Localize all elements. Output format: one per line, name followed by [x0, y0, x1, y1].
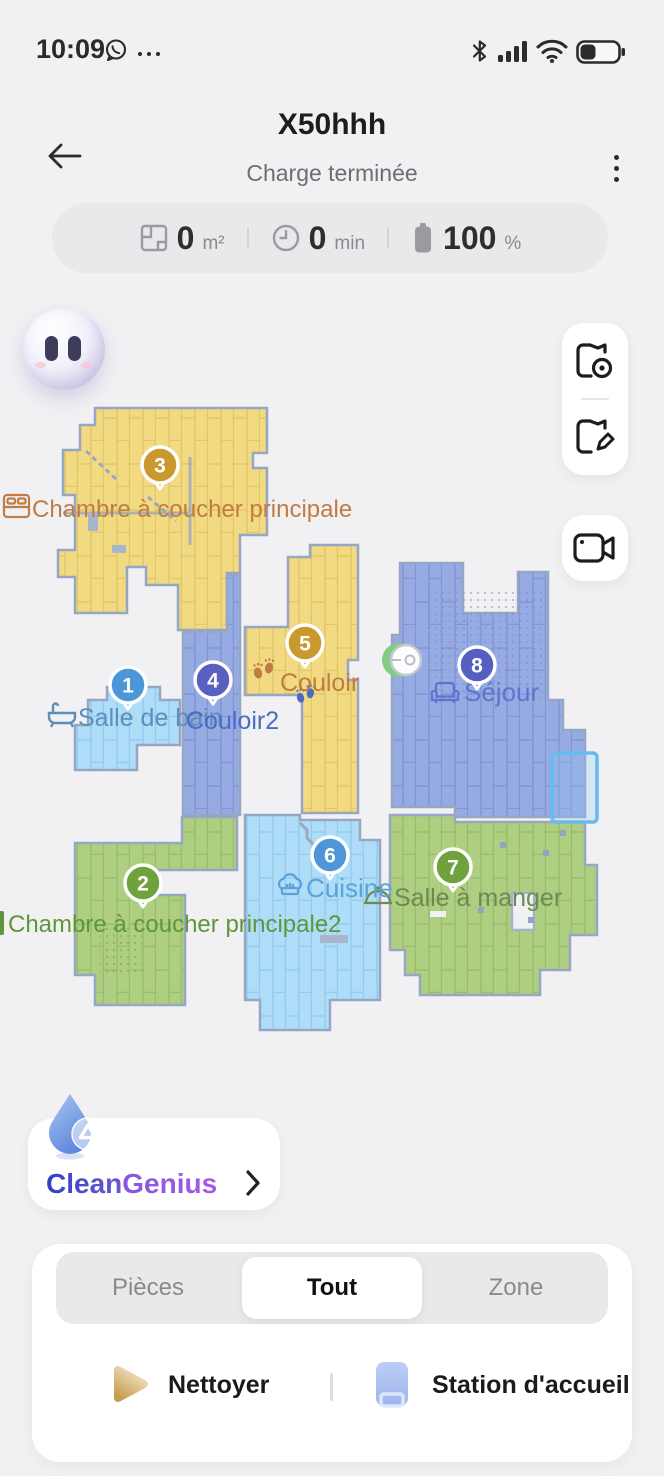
divider: [330, 1373, 333, 1401]
robot-eye: [45, 336, 58, 361]
room-label: Salle à manger: [394, 884, 562, 912]
play-icon[interactable]: [112, 1364, 150, 1404]
area-value: 0: [177, 220, 195, 257]
dock-station-icon[interactable]: [374, 1360, 410, 1408]
svg-text:6: 6: [324, 845, 336, 868]
robot-at-dock-icon[interactable]: [382, 643, 421, 677]
map-view-button[interactable]: [574, 342, 616, 380]
cellular-signal-icon: [498, 40, 530, 62]
robot-eye: [68, 336, 81, 361]
whatsapp-icon: [104, 38, 128, 62]
chevron-right-icon[interactable]: [244, 1170, 262, 1196]
dock-button[interactable]: Station d'accueil: [432, 1371, 630, 1400]
floor-map[interactable]: Chambre à coucher principale Salle de ba…: [0, 395, 664, 1045]
camera-button[interactable]: [562, 515, 628, 581]
battery-level-icon: [411, 222, 435, 254]
room-label: Couloir: [280, 669, 359, 697]
bathtub-icon: [49, 704, 75, 728]
mode-tabs: Pièces Tout Zone: [56, 1252, 608, 1324]
clock-icon: [271, 223, 301, 253]
svg-text:5: 5: [299, 633, 311, 656]
bluetooth-icon: [470, 39, 490, 63]
selected-zone-rect[interactable]: [552, 753, 597, 822]
room-label: Cuisine: [306, 873, 393, 903]
water-drop-icon: [44, 1092, 112, 1162]
battery-value: 100: [443, 220, 496, 257]
svg-text:4: 4: [207, 670, 219, 693]
cleangenius-title: CleanGenius: [46, 1168, 217, 1200]
map-edit-button[interactable]: [574, 418, 616, 456]
device-status: Charge terminée: [0, 160, 664, 187]
tab-tout[interactable]: Tout: [242, 1257, 422, 1319]
app-screen: 10:09 X50hhh Charge terminée: [0, 0, 664, 1476]
status-time: 10:09: [36, 34, 105, 65]
clean-controls-card: Pièces Tout Zone Nettoyer Station d'accu: [32, 1244, 632, 1462]
stat-battery: 100 %: [411, 220, 521, 257]
time-unit: min: [334, 233, 365, 255]
battery-unit: %: [504, 233, 521, 255]
svg-text:2: 2: [137, 873, 149, 896]
robot-blush: [35, 362, 46, 368]
area-icon: [139, 223, 169, 253]
svg-text:1: 1: [122, 675, 134, 698]
room-label: Chambre à coucher principale2: [8, 911, 342, 938]
status-more-icon: [138, 52, 160, 56]
robot-avatar[interactable]: [23, 308, 105, 390]
svg-text:8: 8: [471, 655, 483, 678]
divider: [581, 398, 609, 400]
divider: [247, 227, 249, 249]
video-camera-icon: [573, 532, 617, 564]
stat-time: 0 min: [271, 220, 365, 257]
stats-pill: 0 m² 0 min 100 %: [52, 203, 608, 273]
device-title: X50hhh: [0, 108, 664, 142]
stat-area: 0 m²: [139, 220, 225, 257]
svg-text:7: 7: [447, 857, 459, 880]
battery-icon: [576, 40, 626, 64]
divider: [387, 227, 389, 249]
tab-zone[interactable]: Zone: [426, 1257, 606, 1319]
svg-text:3: 3: [154, 455, 166, 478]
bed-icon-clipped: [0, 911, 4, 935]
tab-pieces[interactable]: Pièces: [58, 1257, 238, 1319]
clean-button[interactable]: Nettoyer: [168, 1371, 269, 1400]
area-unit: m²: [202, 233, 224, 255]
bed-icon: [4, 495, 29, 517]
room-label: Chambre à coucher principale: [32, 496, 352, 523]
robot-blush: [81, 362, 92, 368]
room-label: Couloir2: [186, 707, 279, 735]
kebab-menu-icon[interactable]: [606, 146, 626, 190]
map-tools-panel: [562, 323, 628, 475]
wifi-icon: [536, 38, 568, 64]
time-value: 0: [309, 220, 327, 257]
